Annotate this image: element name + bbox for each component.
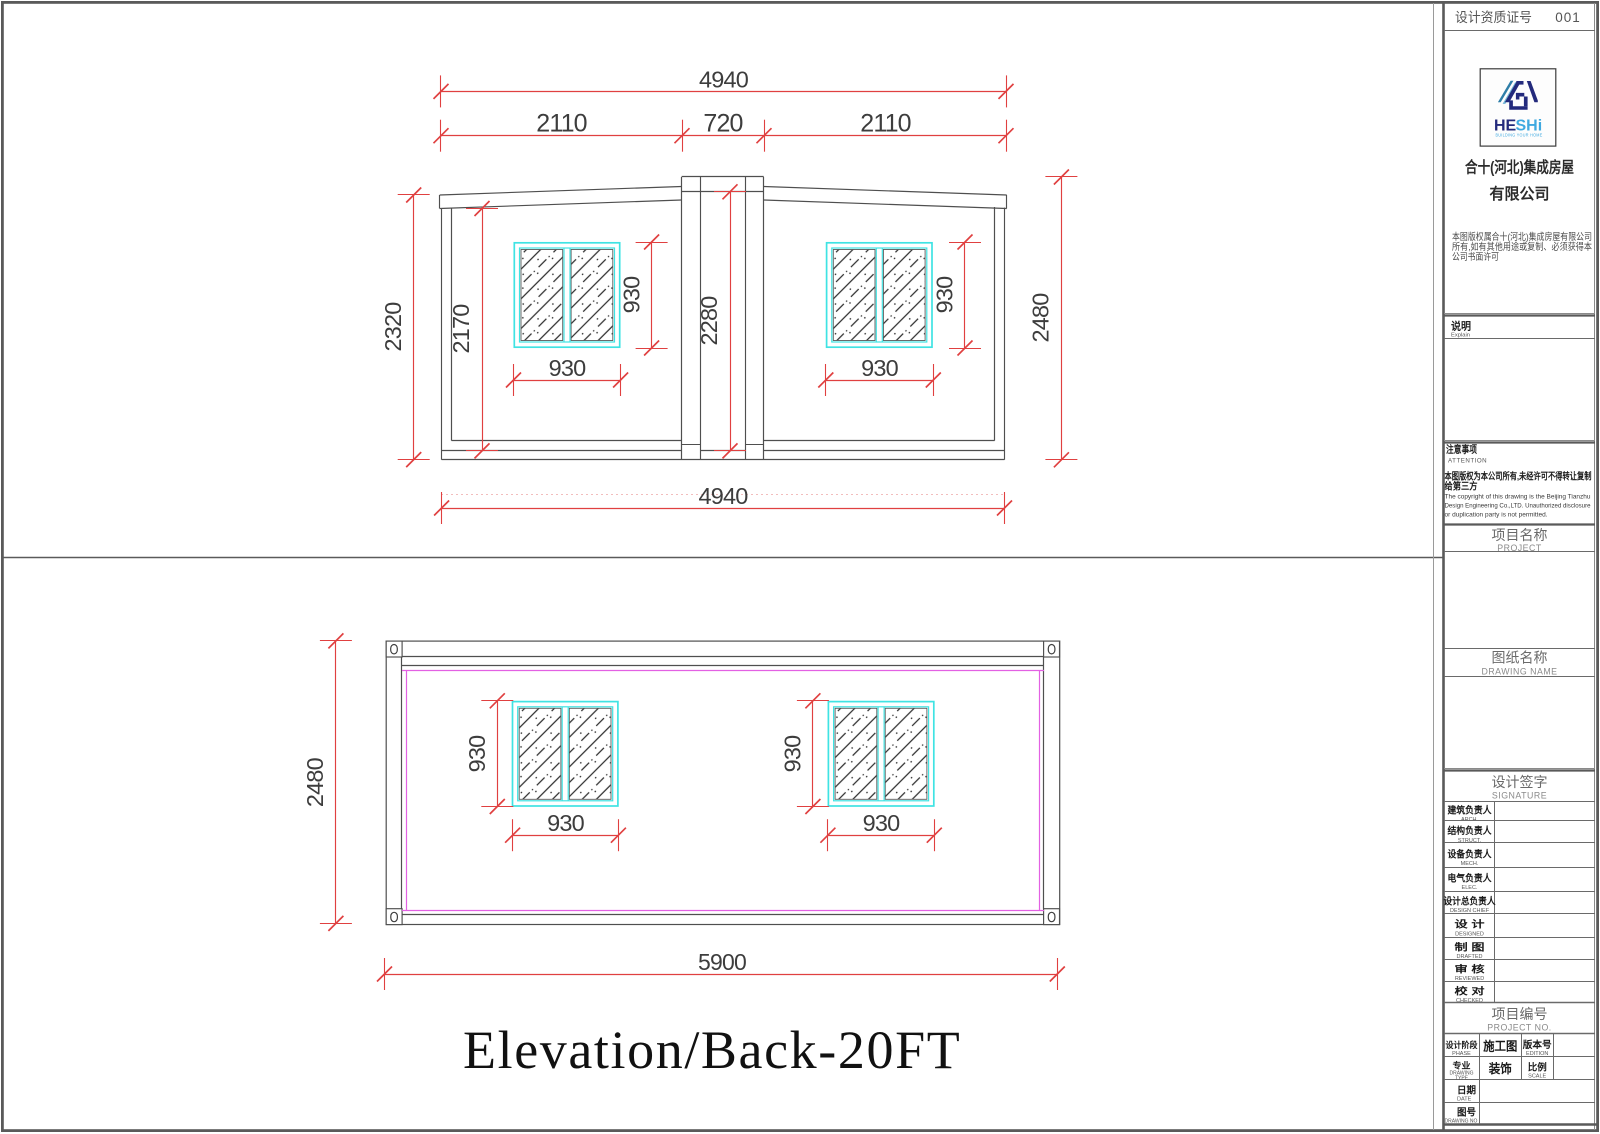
- svg-text:日期: 日期: [1457, 1084, 1476, 1097]
- svg-text:DRAWING NAME: DRAWING NAME: [1481, 667, 1557, 677]
- svg-text:图纸名称: 图纸名称: [1492, 650, 1548, 666]
- svg-text:比例: 比例: [1528, 1061, 1547, 1074]
- svg-text:DESIGNED: DESIGNED: [1455, 931, 1484, 937]
- svg-text:设计阶段: 设计阶段: [1446, 1039, 1478, 1050]
- svg-text:930: 930: [464, 735, 490, 773]
- svg-text:设备负责人: 设备负责人: [1448, 847, 1492, 860]
- svg-text:2280: 2280: [696, 296, 722, 346]
- svg-text:930: 930: [861, 355, 899, 381]
- svg-text:TYPE: TYPE: [1455, 1076, 1469, 1082]
- svg-text:Elevation/Back-20FT: Elevation/Back-20FT: [463, 1020, 961, 1080]
- svg-text:图号: 图号: [1457, 1107, 1476, 1119]
- svg-text:2170: 2170: [448, 304, 474, 354]
- svg-text:项目名称: 项目名称: [1492, 527, 1548, 543]
- svg-text:建筑负责人: 建筑负责人: [1448, 804, 1492, 817]
- svg-text:审 核: 审 核: [1455, 963, 1485, 976]
- svg-text:BUILDING YOUR HOME: BUILDING YOUR HOME: [1496, 133, 1543, 138]
- svg-text:001: 001: [1555, 10, 1581, 25]
- svg-text:说明: 说明: [1451, 320, 1471, 333]
- svg-text:EDITION: EDITION: [1526, 1051, 1548, 1057]
- svg-text:有限公司: 有限公司: [1490, 184, 1550, 203]
- svg-text:设 计: 设 计: [1455, 918, 1485, 931]
- svg-text:930: 930: [547, 810, 585, 836]
- svg-text:SCALE: SCALE: [1528, 1074, 1546, 1080]
- svg-text:设计签字: 设计签字: [1492, 774, 1548, 790]
- svg-text:版本号: 版本号: [1523, 1038, 1552, 1051]
- svg-text:装饰: 装饰: [1488, 1061, 1512, 1076]
- svg-text:结构负责人: 结构负责人: [1448, 824, 1492, 837]
- svg-text:2320: 2320: [380, 302, 406, 352]
- svg-text:Design Engineering Co.,LTD. Un: Design Engineering Co.,LTD. Unauthorized…: [1445, 502, 1591, 509]
- svg-text:施工图: 施工图: [1483, 1039, 1517, 1054]
- svg-text:PHASE: PHASE: [1452, 1051, 1471, 1057]
- svg-text:The copyright of this draw: The copyright of this drawing is the Bei…: [1445, 493, 1591, 500]
- svg-text:720: 720: [703, 110, 742, 138]
- svg-text:or duplication party is no: or duplication party is not permitted.: [1445, 511, 1548, 518]
- svg-text:930: 930: [619, 276, 645, 314]
- svg-text:SIGNATURE: SIGNATURE: [1492, 791, 1547, 801]
- svg-text:设计资质证号: 设计资质证号: [1455, 10, 1532, 25]
- svg-text:合十(河北)集成房屋: 合十(河北)集成房屋: [1465, 158, 1574, 177]
- svg-text:930: 930: [779, 735, 805, 773]
- svg-text:公司书面许可: 公司书面许可: [1452, 251, 1499, 263]
- svg-text:DRAWING NO: DRAWING NO: [1445, 1119, 1478, 1125]
- svg-text:项目编号: 项目编号: [1492, 1006, 1548, 1022]
- svg-text:制 图: 制 图: [1455, 940, 1485, 953]
- svg-text:4940: 4940: [698, 483, 748, 509]
- svg-text:Explain: Explain: [1451, 333, 1470, 339]
- svg-text:ELEC.: ELEC.: [1462, 885, 1478, 891]
- svg-text:本图版权为本公司所有,未经许可不得转让复制: 本图版权为本公司所有,未经许可不得转让复制: [1445, 470, 1592, 482]
- svg-text:MECH.: MECH.: [1461, 861, 1479, 867]
- svg-text:2480: 2480: [1028, 293, 1054, 343]
- svg-text:CHECKED: CHECKED: [1456, 998, 1483, 1004]
- svg-text:930: 930: [932, 276, 958, 314]
- svg-text:5900: 5900: [698, 949, 746, 975]
- svg-text:2110: 2110: [536, 110, 587, 138]
- svg-text:PROJECT: PROJECT: [1497, 543, 1542, 553]
- svg-text:930: 930: [863, 810, 901, 836]
- svg-text:2110: 2110: [860, 110, 911, 138]
- svg-text:930: 930: [549, 355, 587, 381]
- svg-text:PROJECT NO.: PROJECT NO.: [1487, 1023, 1551, 1033]
- svg-text:ATTENTION: ATTENTION: [1448, 458, 1487, 465]
- svg-text:DATE: DATE: [1457, 1097, 1472, 1103]
- svg-text:校 对: 校 对: [1455, 984, 1485, 997]
- svg-text:给第三方: 给第三方: [1445, 481, 1478, 493]
- svg-text:2480: 2480: [302, 757, 328, 807]
- svg-text:4940: 4940: [699, 66, 749, 92]
- svg-text:设计总负责人: 设计总负责人: [1444, 895, 1496, 908]
- svg-text:专业: 专业: [1453, 1060, 1471, 1071]
- svg-text:电气负责人: 电气负责人: [1448, 872, 1492, 885]
- svg-text:注意事项: 注意事项: [1446, 443, 1477, 456]
